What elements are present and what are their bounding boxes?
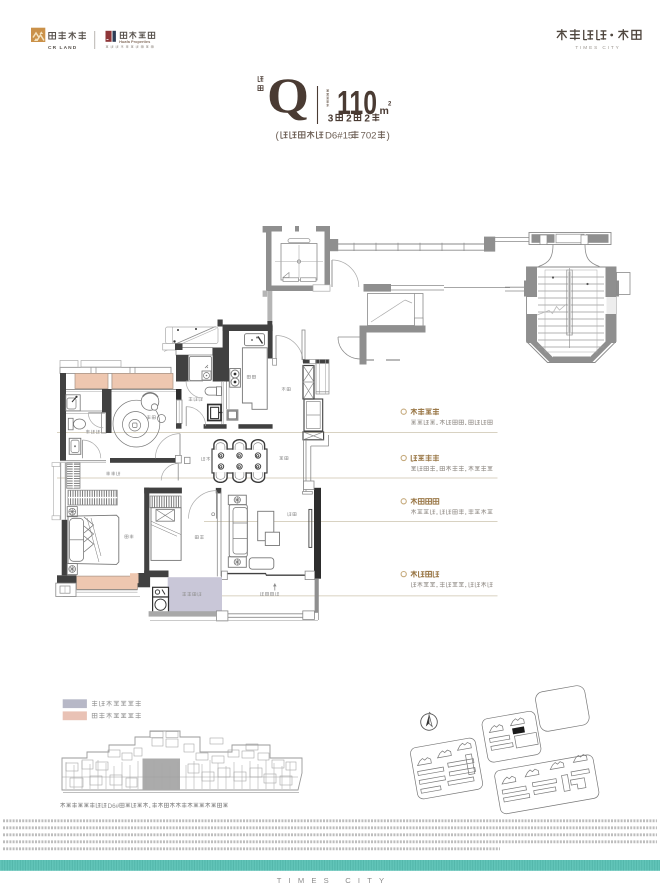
svg-text:Q: Q xyxy=(267,69,309,124)
svg-text:2: 2 xyxy=(346,113,352,124)
svg-text:(: ( xyxy=(276,131,280,142)
svg-text:D6#: D6# xyxy=(108,803,120,810)
svg-text:TIMES CITY: TIMES CITY xyxy=(277,876,392,885)
svg-text:2: 2 xyxy=(364,113,370,124)
svg-text:): ) xyxy=(387,131,390,142)
svg-text:2: 2 xyxy=(388,102,392,108)
svg-text:702: 702 xyxy=(361,130,377,141)
svg-text:Huafa Properties: Huafa Properties xyxy=(119,39,150,44)
svg-text:D6#15: D6#15 xyxy=(325,130,353,141)
svg-text:TIMES CITY: TIMES CITY xyxy=(575,45,620,50)
svg-text:CR LAND: CR LAND xyxy=(48,45,77,51)
svg-text:3: 3 xyxy=(328,113,334,124)
